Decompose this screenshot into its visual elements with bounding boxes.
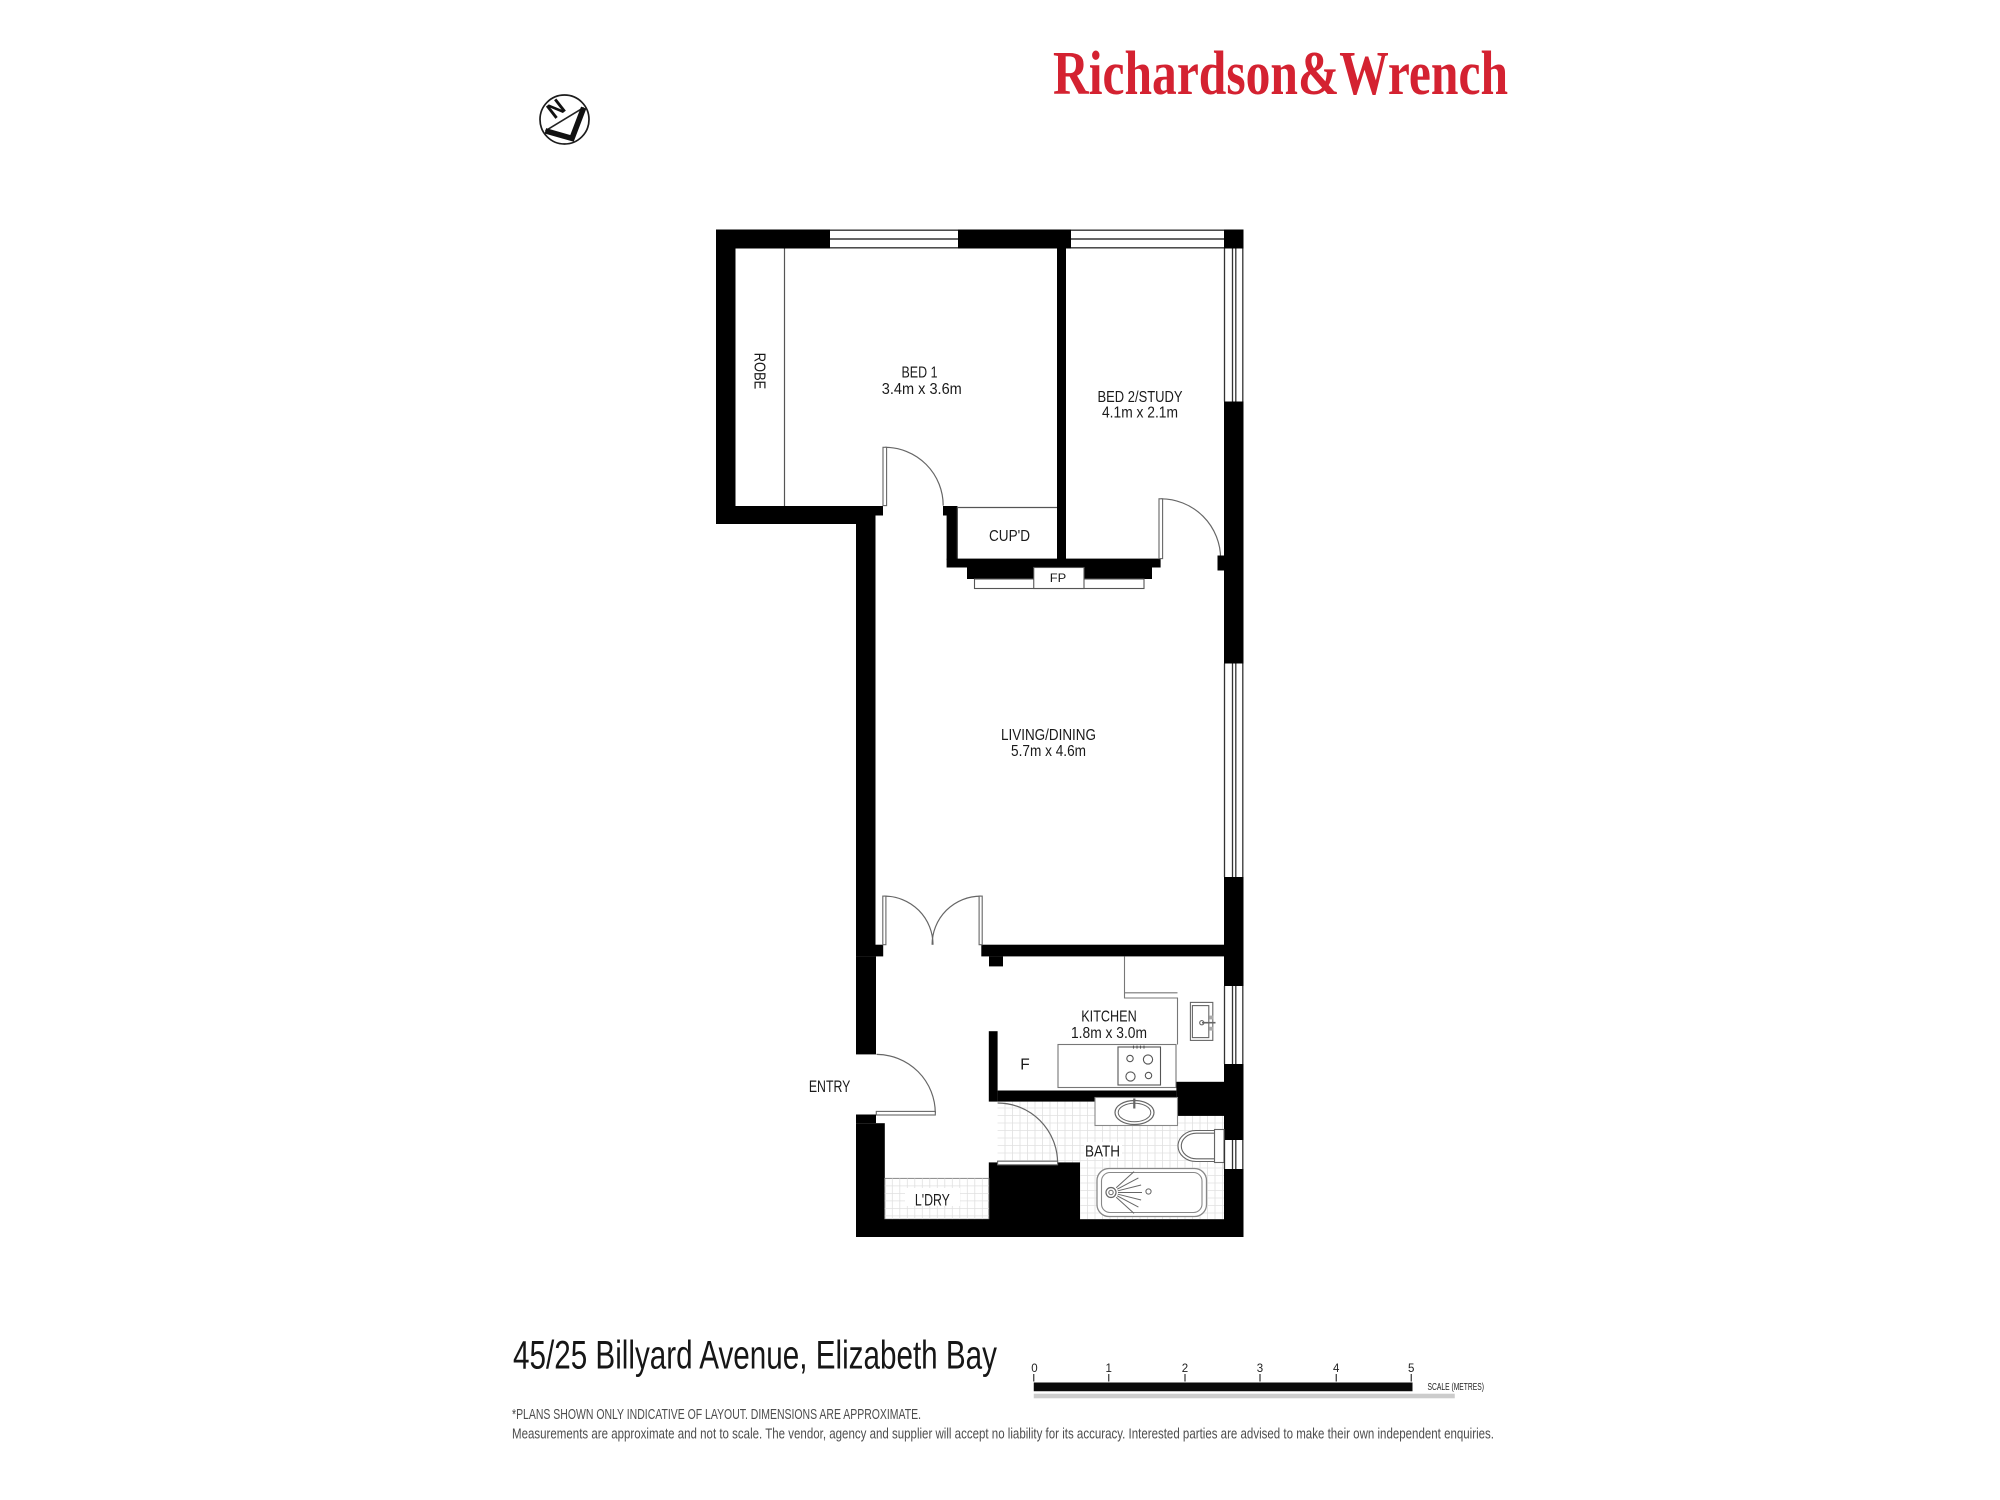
svg-text:ENTRY: ENTRY <box>809 1077 851 1096</box>
svg-text:FP: FP <box>1050 573 1067 585</box>
svg-text:BATH: BATH <box>1085 1144 1120 1161</box>
svg-text:4: 4 <box>1333 1363 1340 1375</box>
svg-text:3.4m x 3.6m: 3.4m x 3.6m <box>882 381 962 398</box>
svg-text:Richardson&Wrench: Richardson&Wrench <box>1053 40 1508 108</box>
svg-text:BED 2/STUDY: BED 2/STUDY <box>1098 389 1183 406</box>
svg-text:5.7m x 4.6m: 5.7m x 4.6m <box>1011 743 1086 760</box>
svg-text:3: 3 <box>1257 1363 1263 1375</box>
svg-text:2: 2 <box>1182 1363 1188 1375</box>
svg-text:1.8m x 3.0m: 1.8m x 3.0m <box>1071 1025 1147 1042</box>
svg-text:5: 5 <box>1408 1363 1414 1375</box>
svg-text:SCALE (METRES): SCALE (METRES) <box>1428 1382 1485 1393</box>
svg-text:L'DRY: L'DRY <box>915 1191 950 1210</box>
svg-text:Measurements are approximate a: Measurements are approximate and not to … <box>512 1426 1494 1443</box>
svg-text:BED 1: BED 1 <box>902 364 938 381</box>
svg-text:CUP'D: CUP'D <box>989 528 1030 545</box>
svg-text:LIVING/DINING: LIVING/DINING <box>1001 727 1096 744</box>
svg-text:1: 1 <box>1106 1363 1112 1375</box>
svg-text:4.1m x 2.1m: 4.1m x 2.1m <box>1102 405 1178 422</box>
svg-text:KITCHEN: KITCHEN <box>1081 1009 1137 1026</box>
svg-text:45/25 Billyard Avenue, Elizabe: 45/25 Billyard Avenue, Elizabeth Bay <box>513 1334 997 1378</box>
svg-text:ROBE: ROBE <box>751 353 768 390</box>
svg-text:*PLANS SHOWN ONLY INDICATIVE O: *PLANS SHOWN ONLY INDICATIVE OF LAYOUT. … <box>512 1406 921 1423</box>
svg-text:0: 0 <box>1031 1363 1037 1375</box>
svg-text:F: F <box>1020 1057 1029 1074</box>
